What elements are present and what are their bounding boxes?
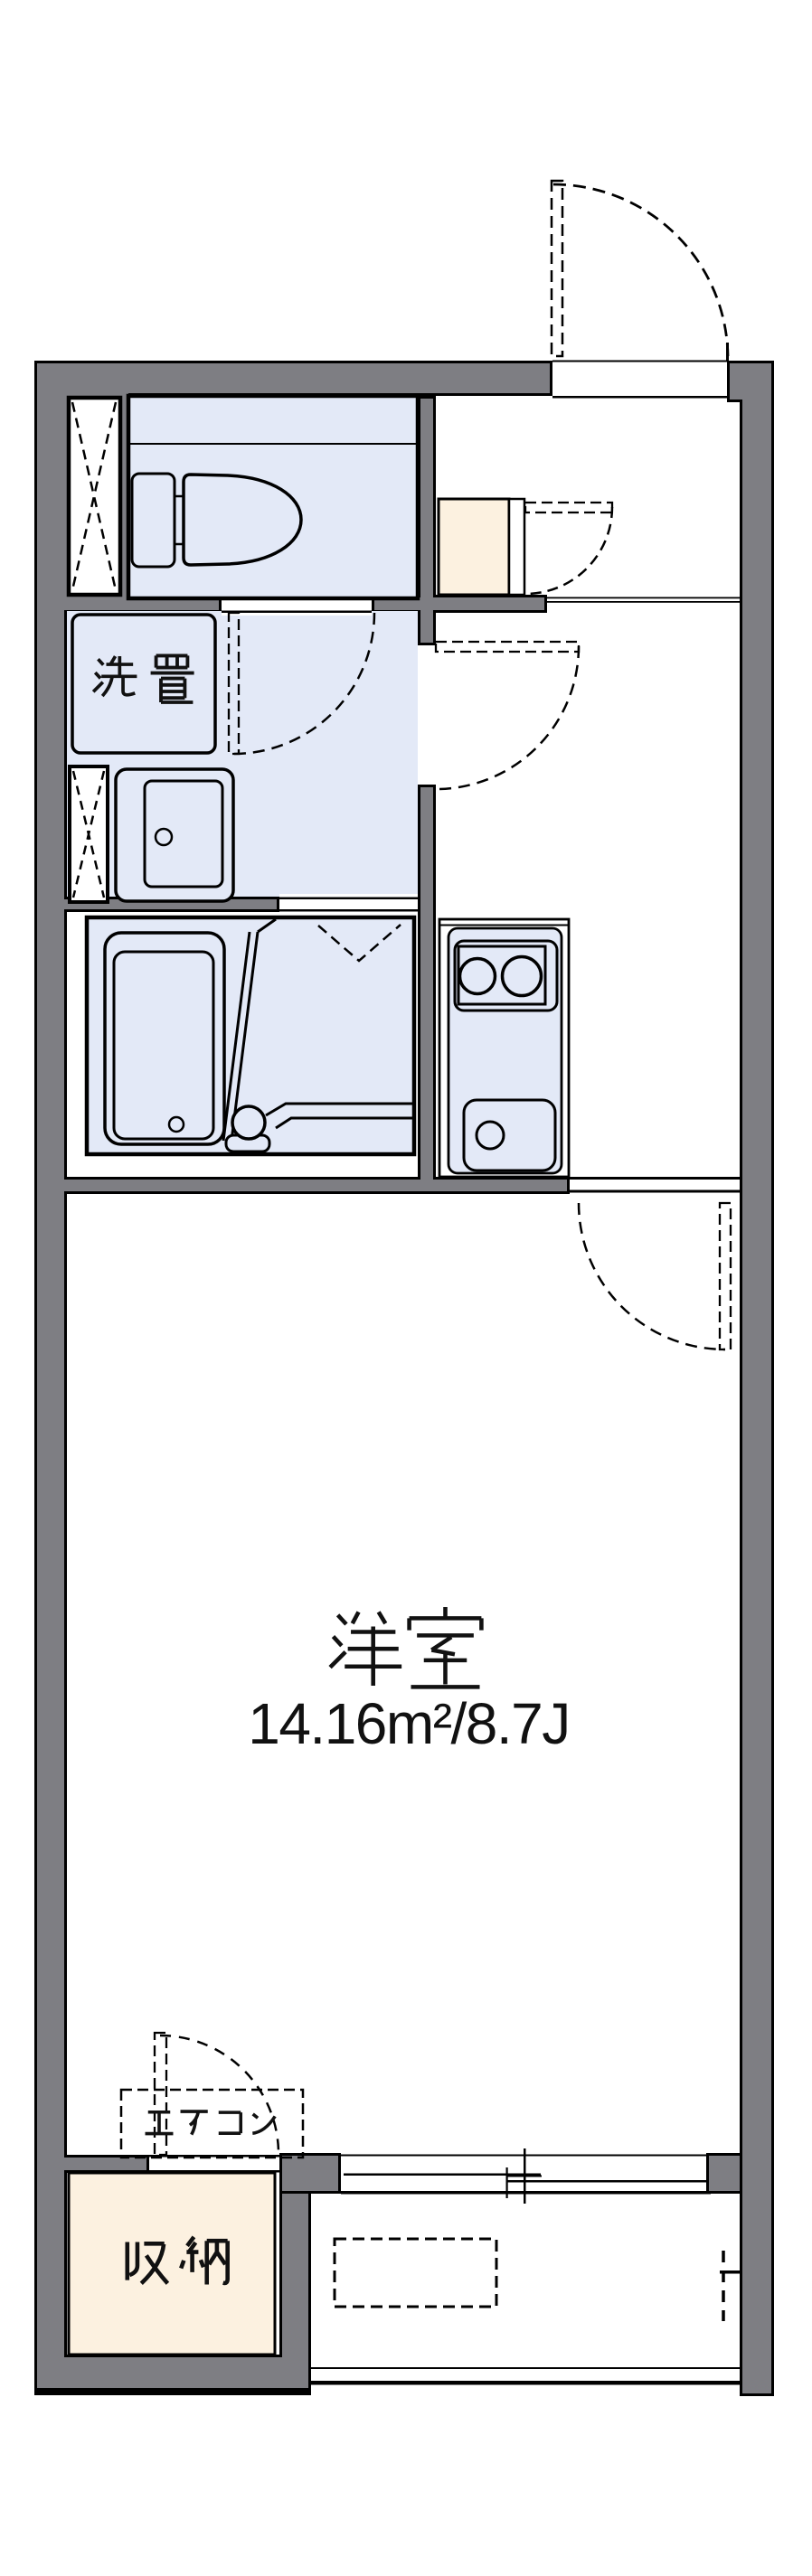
svg-text:14.16m²/8.7J: 14.16m²/8.7J — [248, 1691, 570, 1756]
